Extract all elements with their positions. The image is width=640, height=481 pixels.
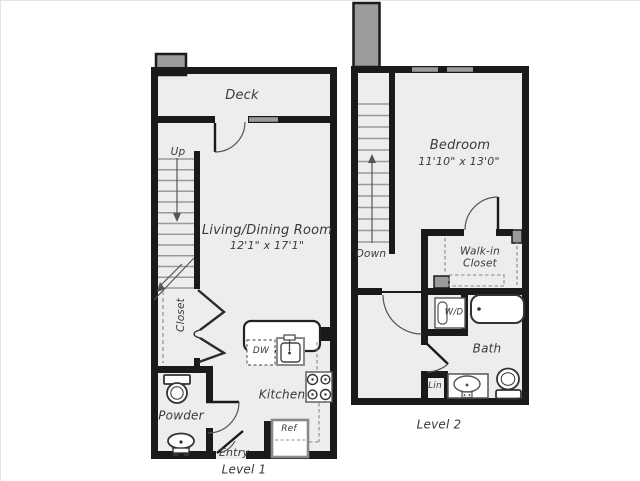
lin-label: Lin <box>428 382 442 392</box>
bathtub-icon <box>471 295 524 323</box>
stove-icon <box>306 372 332 402</box>
level2-plan <box>351 3 529 405</box>
vanity-sink-icon <box>448 374 488 398</box>
living-dining-label: Living/Dining Room <box>202 224 332 238</box>
washer-dryer-label: W/D <box>445 308 463 317</box>
closet-post <box>434 276 449 288</box>
down-label: Down <box>356 249 387 261</box>
chimney-level2 <box>354 3 380 67</box>
refrigerator-label: Ref <box>281 425 297 435</box>
level2-label: Level 2 <box>417 418 462 431</box>
level1-label: Level 1 <box>222 463 267 476</box>
bedroom-window <box>412 67 438 72</box>
bath-label: Bath <box>473 342 502 355</box>
kitchen-label: Kitchen <box>259 388 306 401</box>
floorplan-linework <box>1 1 640 481</box>
floorplan-image: Deck Up Living/Dining Room 12'1" x 17'1"… <box>0 0 640 481</box>
powder-label: Powder <box>158 409 204 422</box>
bedroom-dims: 11'10" x 13'0" <box>418 156 499 168</box>
deck-label: Deck <box>225 89 258 103</box>
bedroom-window <box>447 67 473 72</box>
toilet-icon <box>164 375 190 403</box>
dishwasher-label: DW <box>253 347 269 357</box>
closet-label: Closet <box>176 298 188 332</box>
bedroom-label: Bedroom <box>430 139 490 153</box>
living-dining-dims: 12'1" x 17'1" <box>230 240 304 252</box>
kitchen-sink-icon <box>277 335 304 365</box>
toilet2-icon <box>496 369 521 399</box>
level1-plan <box>151 54 337 459</box>
entry-label: Entry <box>219 447 249 459</box>
walkin-closet-label: Walk-in Closet <box>448 246 512 269</box>
up-label: Up <box>171 147 186 159</box>
deck-window <box>249 117 278 122</box>
